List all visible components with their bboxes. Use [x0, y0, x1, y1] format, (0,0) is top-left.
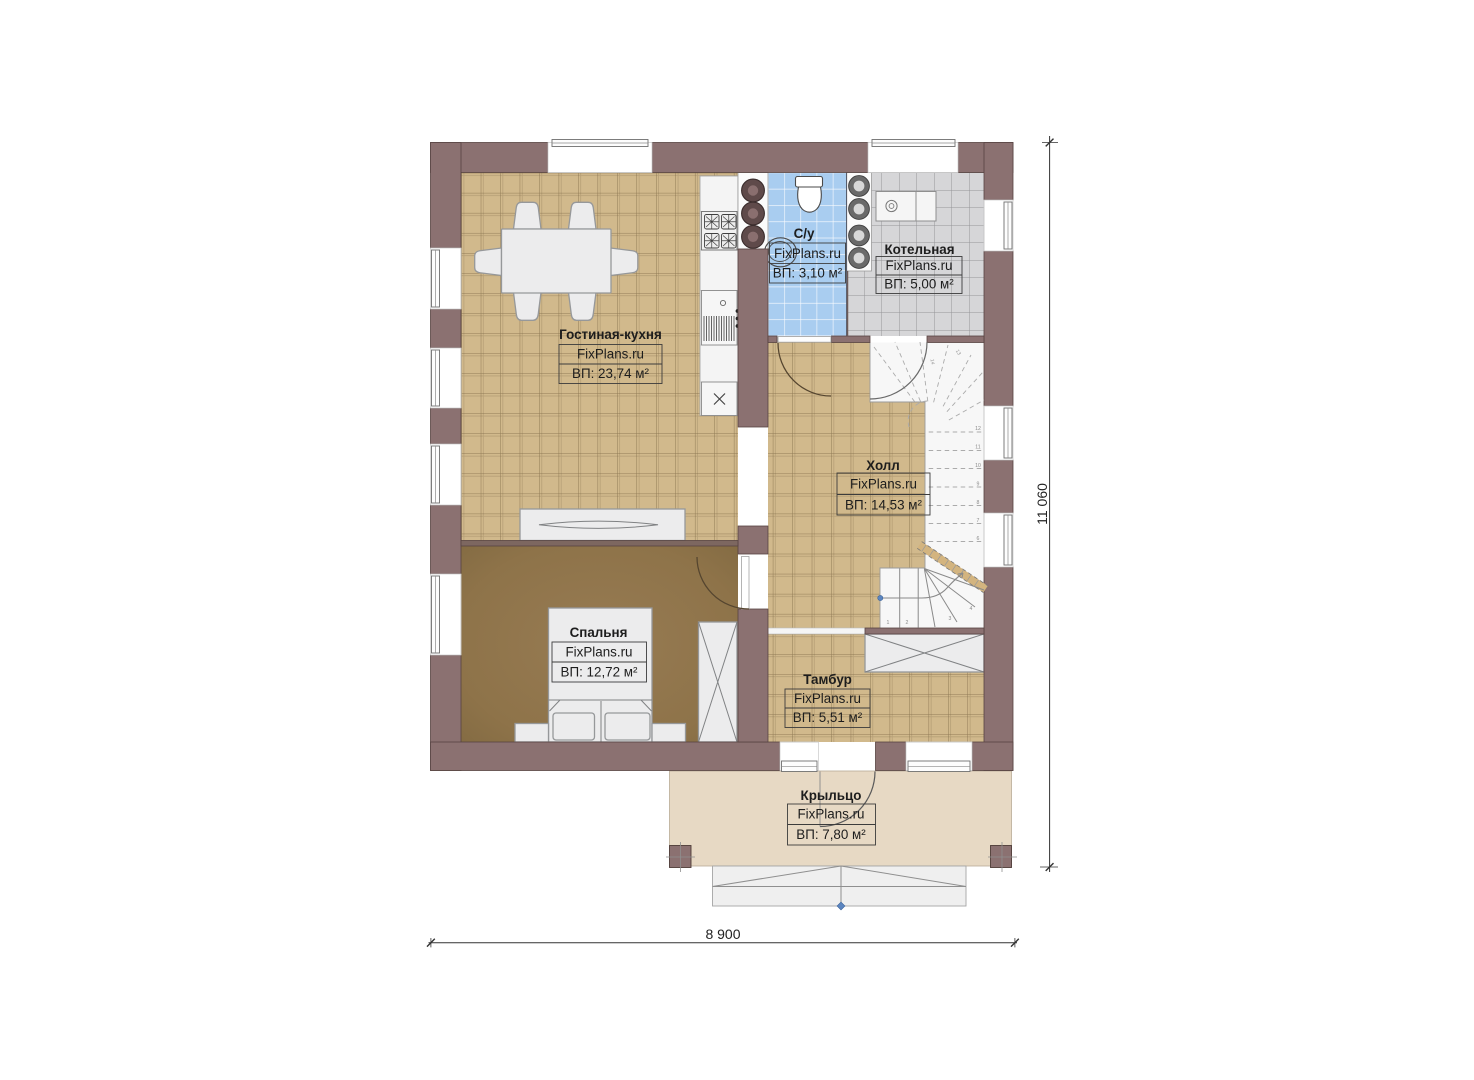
svg-text:Холл: Холл	[866, 458, 900, 473]
svg-text:FixPlans.ru: FixPlans.ru	[850, 477, 917, 492]
svg-text:FixPlans.ru: FixPlans.ru	[794, 691, 861, 706]
svg-text:9: 9	[977, 482, 980, 488]
svg-text:FixPlans.ru: FixPlans.ru	[577, 347, 644, 362]
svg-text:7: 7	[977, 518, 980, 524]
svg-text:3: 3	[949, 616, 952, 622]
svg-text:12: 12	[975, 426, 981, 432]
svg-text:10: 10	[975, 463, 981, 469]
svg-text:Гостиная-кухня: Гостиная-кухня	[559, 327, 662, 342]
svg-text:8 900: 8 900	[705, 926, 740, 942]
svg-text:Тамбур: Тамбур	[803, 672, 852, 687]
svg-text:ВП: 23,74 м²: ВП: 23,74 м²	[572, 366, 649, 381]
svg-text:FixPlans.ru: FixPlans.ru	[774, 246, 841, 261]
svg-text:ВП: 12,72 м²: ВП: 12,72 м²	[561, 665, 638, 680]
svg-text:ВП: 5,51 м²: ВП: 5,51 м²	[793, 710, 863, 725]
svg-text:Котельная: Котельная	[884, 242, 954, 257]
svg-text:FixPlans.ru: FixPlans.ru	[886, 258, 953, 273]
svg-text:ВП: 7,80 м²: ВП: 7,80 м²	[796, 827, 866, 842]
svg-text:FixPlans.ru: FixPlans.ru	[566, 645, 633, 660]
svg-text:1: 1	[887, 620, 890, 626]
svg-text:ВП: 3,10 м²: ВП: 3,10 м²	[773, 266, 843, 281]
svg-text:FixPlans.ru: FixPlans.ru	[798, 807, 865, 822]
svg-text:ВП: 14,53 м²: ВП: 14,53 м²	[845, 498, 922, 513]
svg-text:2: 2	[906, 620, 909, 626]
svg-text:С/у: С/у	[794, 226, 815, 241]
svg-text:6: 6	[977, 536, 980, 542]
svg-text:11: 11	[975, 445, 980, 451]
svg-text:11 060: 11 060	[1034, 483, 1050, 525]
svg-text:Спальня: Спальня	[570, 625, 628, 640]
svg-text:Крыльцо: Крыльцо	[801, 788, 862, 803]
svg-text:8: 8	[977, 500, 980, 506]
svg-text:ВП: 5,00 м²: ВП: 5,00 м²	[884, 277, 954, 292]
svg-text:4: 4	[970, 606, 973, 612]
